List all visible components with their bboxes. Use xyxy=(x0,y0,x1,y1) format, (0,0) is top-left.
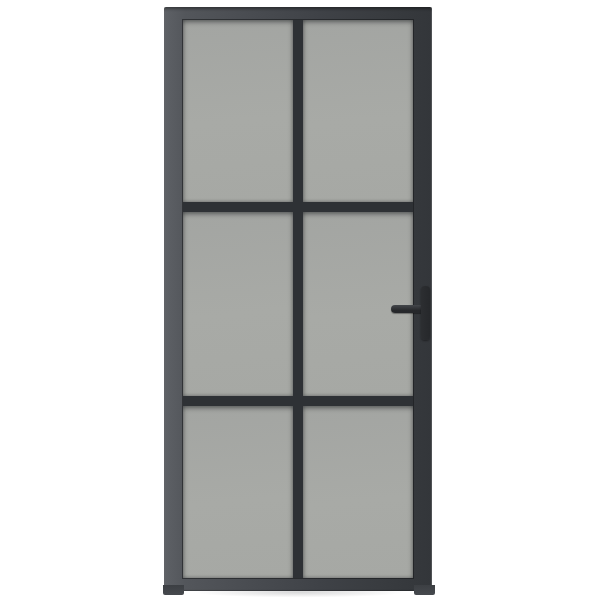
glass-panel xyxy=(183,406,293,578)
glass-panel xyxy=(183,20,293,202)
glass-door xyxy=(164,7,432,591)
product-photo-canvas xyxy=(0,0,600,600)
door-handle-backplate xyxy=(421,286,430,340)
glass-grille xyxy=(183,20,413,578)
glass-panel xyxy=(303,406,413,578)
glass-panel xyxy=(303,20,413,202)
door-foot-right xyxy=(414,585,435,595)
door-handle-lever xyxy=(391,305,425,313)
glass-panel xyxy=(183,212,293,396)
glass-panel xyxy=(303,212,413,396)
door-foot-left xyxy=(163,585,184,595)
